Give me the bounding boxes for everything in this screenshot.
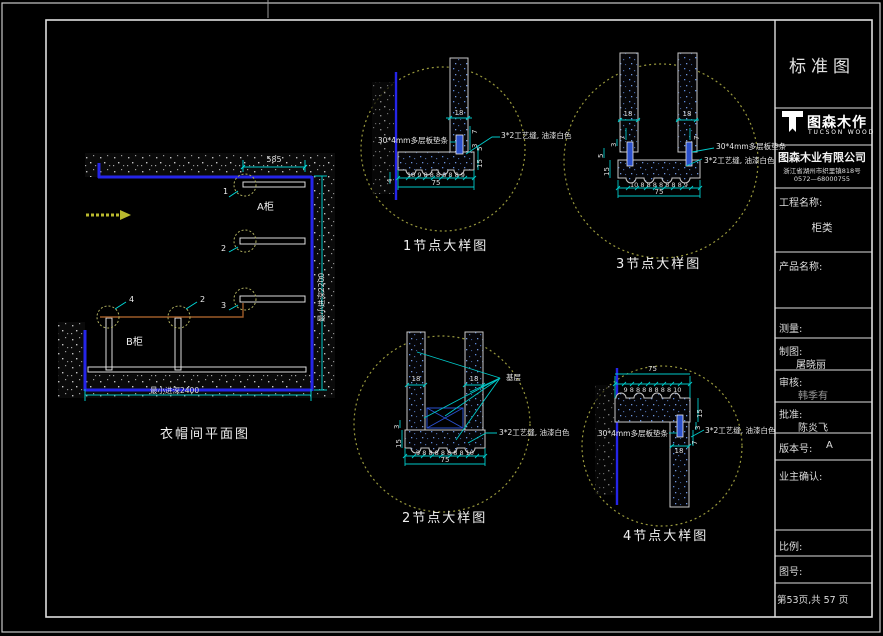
detail-1-dim-5: 5	[477, 147, 484, 151]
detail-4-dim-15: 15	[697, 409, 704, 418]
detail-3-dim-3: 3	[611, 143, 618, 147]
plan-dim-bottom: 最小进深2400	[150, 387, 199, 395]
detail-3-caption: 3节点大样图	[616, 258, 701, 272]
detail-1-spacer-label: 30*4mm多层板垫条	[368, 137, 448, 145]
detail-4-dim-7: 7	[692, 441, 699, 445]
detail-3-dim-7-left: 7	[620, 136, 627, 140]
page-number: 第53页,共 57 页	[777, 592, 848, 606]
draftsman-value: 屠晓丽	[796, 356, 826, 371]
plan-callout-4: 4	[129, 296, 134, 304]
detail-3-dim-7-right: 7	[694, 136, 701, 140]
sheet-title: 标准图	[775, 52, 869, 77]
detail-3-spacer-label: 30*4mm多层板垫条	[716, 143, 786, 151]
detail-3-seam-label: 3*2工艺缝, 油漆白色	[704, 157, 775, 165]
detail-3-dim-18-right: 18	[675, 111, 699, 118]
scale-label: 比例:	[779, 538, 802, 553]
detail-2-total-dim: 75	[405, 457, 485, 464]
company-address: 浙江省湖州市织里镇818号	[775, 165, 869, 175]
plan-callout-3: 3	[221, 302, 226, 310]
plan-cabinet-a	[240, 182, 305, 302]
plan-callout-2: 2	[221, 245, 226, 253]
detail-1-seam-label: 3*2工艺缝, 油漆白色	[501, 132, 572, 140]
reviewer-value: 韩季有	[798, 387, 828, 402]
project-name-label: 工程名称:	[779, 194, 822, 209]
detail-2-geometry	[354, 332, 530, 512]
detail-4-chain-dims: 9 8 8 8 8 8 8 8 10	[615, 387, 690, 394]
plan-dim-585: 585	[243, 156, 305, 164]
detail-4-caption: 4节点大样图	[623, 530, 708, 544]
plan-dimensions	[85, 160, 327, 401]
detail-2-base-label: 基层	[506, 374, 521, 382]
drawing-number-label: 图号:	[779, 563, 802, 578]
cad-drawing-sheet: 标准图 图森木作 TUCSON WOOD 图森木业有限公司 浙江省湖州市织里镇8…	[0, 0, 883, 636]
detail-1-dim-18: 18	[446, 110, 472, 117]
cabinet-a-label: A柜	[257, 203, 274, 214]
detail-4-total-dim: 75	[615, 366, 690, 373]
version-label: 版本号:	[779, 440, 812, 455]
detail-2-dim-18-left: 18	[403, 376, 429, 383]
detail-4-seam-label: 3*2工艺缝, 油漆白色	[705, 427, 776, 435]
detail-1-dim-15: 15	[477, 159, 484, 168]
detail-2-caption: 2节点大样图	[402, 512, 487, 526]
plan-caption: 衣帽间平面图	[160, 428, 250, 442]
detail-2-dim-3: 3	[394, 425, 401, 429]
detail-1-dim-7: 7	[472, 130, 479, 134]
detail-2-dim-18-right: 18	[461, 376, 487, 383]
cabinet-b-label: B柜	[126, 338, 143, 349]
plan-callout-leaders	[115, 191, 238, 310]
detail-3-dim-18-left: 18	[616, 111, 640, 118]
detail-4-spacer-label: 30*4mm多层板垫条	[596, 430, 668, 438]
detail-2-seam-label: 3*2工艺缝, 油漆白色	[499, 429, 570, 437]
plan-callout-1: 1	[223, 188, 228, 196]
detail-4-dim-3: 3	[695, 426, 702, 430]
approver-value: 陈炎飞	[798, 419, 828, 434]
detail-3-dim-5: 5	[598, 154, 605, 158]
drawing-canvas	[0, 0, 883, 636]
company-phone: 0572—68000755	[775, 175, 869, 183]
company-name: 图森木业有限公司	[775, 149, 869, 165]
plan-wall-hatch	[58, 153, 335, 398]
sheet-frame	[2, 0, 880, 632]
owner-confirm-label: 业主确认:	[779, 468, 822, 483]
detail-1-caption: 1节点大样图	[403, 240, 488, 254]
detail-1-chain-dims: 10 9 8 8 8 8 8 8 9	[398, 172, 474, 179]
entrance-arrow	[86, 210, 131, 220]
project-name-value: 柜类	[775, 220, 869, 235]
plan-wall-lines	[85, 163, 312, 391]
measure-label: 测量:	[779, 320, 802, 335]
detail-2-dim-15: 15	[396, 439, 403, 448]
product-name-label: 产品名称:	[779, 258, 822, 273]
detail-4-dim-18: 18	[668, 448, 690, 455]
plan-cabinet-b	[88, 318, 306, 372]
version-value: A	[826, 440, 833, 451]
detail-3-dim-15: 15	[604, 167, 611, 176]
logo-text-en: TUCSON WOOD	[808, 129, 875, 136]
plan-dim-right: 最小进深2200	[318, 273, 326, 322]
detail-1-total-dim: 75	[398, 180, 474, 187]
detail-1-dim-4: 4	[387, 179, 394, 183]
tucson-wood-logo-icon	[782, 111, 803, 132]
detail-3-total-dim: 75	[618, 189, 700, 196]
plan-callout-5: 2	[200, 296, 205, 304]
